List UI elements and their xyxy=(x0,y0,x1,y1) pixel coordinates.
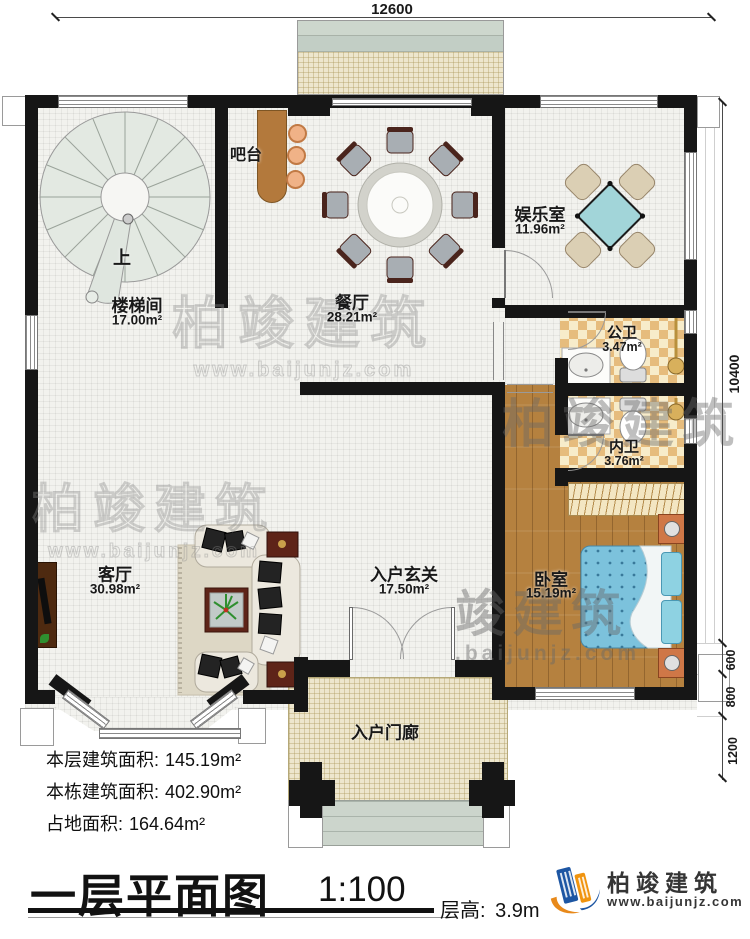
label-stairwell-area: 17.00m² xyxy=(112,313,162,328)
sliding-door-terrace xyxy=(332,98,472,106)
floor-height: 层高: 3.9m xyxy=(440,894,540,923)
dimension-top: 12600 xyxy=(371,1,413,18)
area-stats: 本层建筑面积:145.19m² 本栋建筑面积:402.90m² 占地面积:164… xyxy=(46,744,241,840)
logo-building-blue xyxy=(556,867,578,904)
stair-post xyxy=(123,214,133,224)
label-stair-up: 上 xyxy=(113,244,131,270)
wall-left xyxy=(25,95,38,695)
wall-dining-ent xyxy=(492,298,505,308)
pillow xyxy=(661,600,682,644)
exterior-pier xyxy=(20,708,54,746)
window-living-west xyxy=(25,315,38,370)
wall-foyer-south xyxy=(306,660,350,677)
brand-url: www.baijunjz.com xyxy=(607,894,743,909)
dimension-right-800: 800 xyxy=(724,687,738,708)
sofa-set xyxy=(170,518,305,698)
stat-line: 本栋建筑面积:402.90m² xyxy=(46,776,241,808)
dimension-right-600: 600 xyxy=(724,650,738,671)
wall-living-south xyxy=(25,690,55,704)
stat-line: 占地面积:164.64m² xyxy=(46,808,241,840)
exterior-pier xyxy=(2,96,26,126)
bay-window xyxy=(99,728,241,739)
toilet-tank xyxy=(620,398,646,411)
drawing-scale: 1:100 xyxy=(318,870,406,910)
nightstand xyxy=(658,648,686,678)
floor-height-value: 3.9m xyxy=(495,900,539,922)
floor-height-label: 层高: xyxy=(440,900,486,922)
terrace-band xyxy=(298,21,503,36)
exterior-pier xyxy=(238,708,266,744)
brand-name: 柏竣建筑 xyxy=(607,864,723,898)
stat-label: 占地面积: xyxy=(46,814,123,834)
sink xyxy=(569,403,603,427)
window-private-bath xyxy=(684,418,697,444)
door-leaf-public-bath xyxy=(568,311,606,313)
window-entertainment-east xyxy=(684,152,697,260)
wall-bath-divider xyxy=(555,383,697,396)
entry-door-leaf-right xyxy=(451,607,455,660)
entry-door-leaf-left xyxy=(349,607,353,660)
nightstand xyxy=(658,514,686,544)
stat-value: 145.19m² xyxy=(165,750,241,770)
label-porch: 入户门廊 xyxy=(351,719,419,744)
label-dining-area: 28.21m² xyxy=(327,310,377,325)
wall-dining-ent xyxy=(492,95,505,248)
label-living-area: 30.98m² xyxy=(90,582,140,597)
extension-line xyxy=(697,716,722,717)
wall-bath-west xyxy=(555,358,568,435)
window-public-bath xyxy=(684,310,697,334)
wardrobe-rod xyxy=(569,499,689,500)
brand-logo-icon xyxy=(545,860,603,918)
dimension-right-total: 10400 xyxy=(726,355,742,394)
opening-hallway xyxy=(507,384,553,393)
door-leaf-private-bath xyxy=(568,434,604,436)
title-underline-thin xyxy=(28,917,450,918)
dining-table-set xyxy=(320,125,480,285)
label-foyer-area: 17.50m² xyxy=(379,582,429,597)
bar-stool xyxy=(287,146,306,165)
label-bedroom-area: 15.19m² xyxy=(526,586,576,601)
pillow xyxy=(661,552,682,596)
wall-dining-south xyxy=(300,382,505,395)
wall-foyer-south xyxy=(455,660,499,677)
lamp xyxy=(664,521,680,537)
dimension-line-right xyxy=(722,103,723,780)
wall-stair-east xyxy=(215,95,228,308)
label-entertainment-area: 11.96m² xyxy=(515,222,565,237)
stat-line: 本层建筑面积:145.19m² xyxy=(46,744,241,776)
stair-well xyxy=(101,173,149,221)
porch-pillar xyxy=(289,780,335,806)
wardrobe xyxy=(568,483,690,516)
dimension-right-1200: 1200 xyxy=(726,737,740,765)
wall-wardrobe-north xyxy=(555,468,697,482)
opening-vestibule xyxy=(493,322,504,380)
extension-line xyxy=(697,643,722,644)
stair-end xyxy=(86,291,98,303)
exterior-pier xyxy=(697,96,720,128)
stat-label: 本层建筑面积: xyxy=(46,750,159,770)
shower-head xyxy=(668,358,684,374)
terrace-band xyxy=(298,36,503,52)
porch-pillar xyxy=(469,780,515,806)
wall-bedroom-west xyxy=(492,382,505,700)
spiral-staircase xyxy=(30,105,220,305)
door-leaf-entertainment xyxy=(504,250,506,298)
wall-terrace-pier xyxy=(288,95,330,116)
floorplan-page: 12600 xyxy=(0,0,750,939)
stat-value: 164.64m² xyxy=(129,814,205,834)
window-bedroom-south xyxy=(535,687,635,700)
facade-line xyxy=(714,128,715,643)
wall-terrace-pier xyxy=(471,95,501,116)
bar-stool xyxy=(286,170,305,189)
window-entertainment xyxy=(540,95,658,108)
shower-head xyxy=(668,404,684,420)
porch-steps xyxy=(320,800,484,846)
stat-label: 本栋建筑面积: xyxy=(46,782,159,802)
sink xyxy=(569,353,603,377)
label-private-bath-area: 3.76m² xyxy=(604,454,644,468)
wall-living-south xyxy=(243,690,305,704)
title-underline xyxy=(28,908,434,913)
plant-small xyxy=(40,634,49,643)
brand-logo: 柏竣建筑 www.baijunjz.com xyxy=(545,858,745,920)
label-bar: 吧台 xyxy=(230,141,262,165)
facade-line xyxy=(705,128,706,643)
window-stairwell xyxy=(58,95,188,108)
lamp xyxy=(664,655,680,671)
stat-value: 402.90m² xyxy=(165,782,241,802)
terrace xyxy=(297,20,504,95)
bar-stool xyxy=(288,124,307,143)
label-public-bath-area: 3.47m² xyxy=(602,340,642,354)
terrace-floor xyxy=(298,52,503,94)
